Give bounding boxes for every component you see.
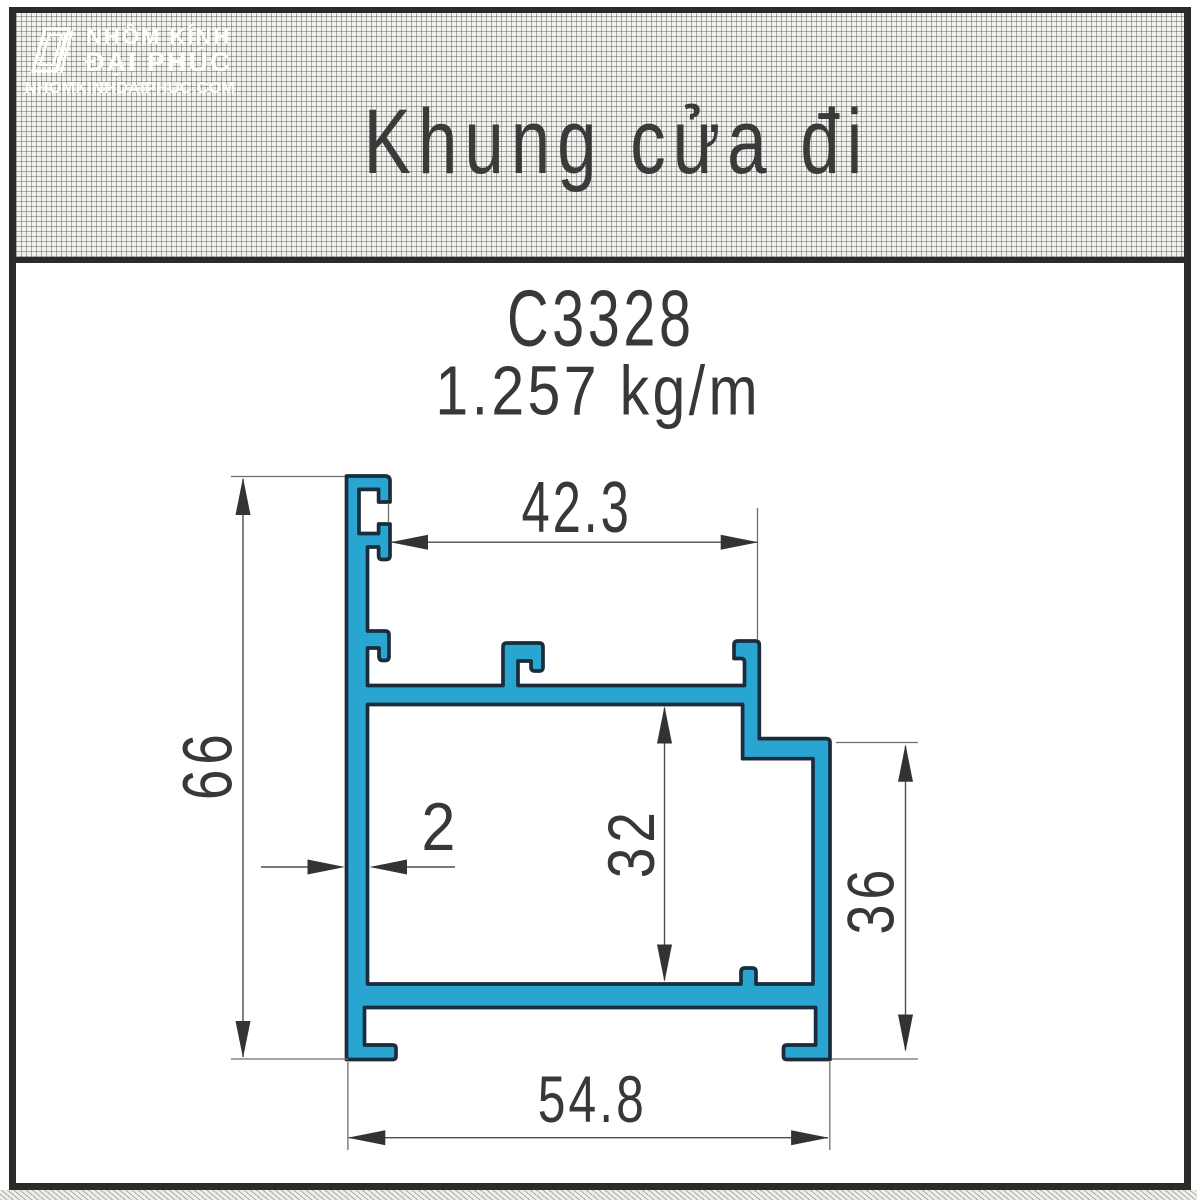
svg-text:C3328: C3328 — [507, 273, 695, 363]
svg-text:2: 2 — [421, 788, 455, 865]
svg-text:1.257 kg/m: 1.257 kg/m — [435, 351, 761, 430]
svg-text:66: 66 — [169, 729, 247, 800]
svg-text:54.8: 54.8 — [538, 1063, 647, 1136]
svg-text:Khung cửa đi: Khung cửa đi — [364, 91, 870, 193]
svg-text:36: 36 — [833, 865, 908, 935]
svg-text:32: 32 — [594, 807, 668, 878]
svg-text:42.3: 42.3 — [521, 468, 631, 548]
